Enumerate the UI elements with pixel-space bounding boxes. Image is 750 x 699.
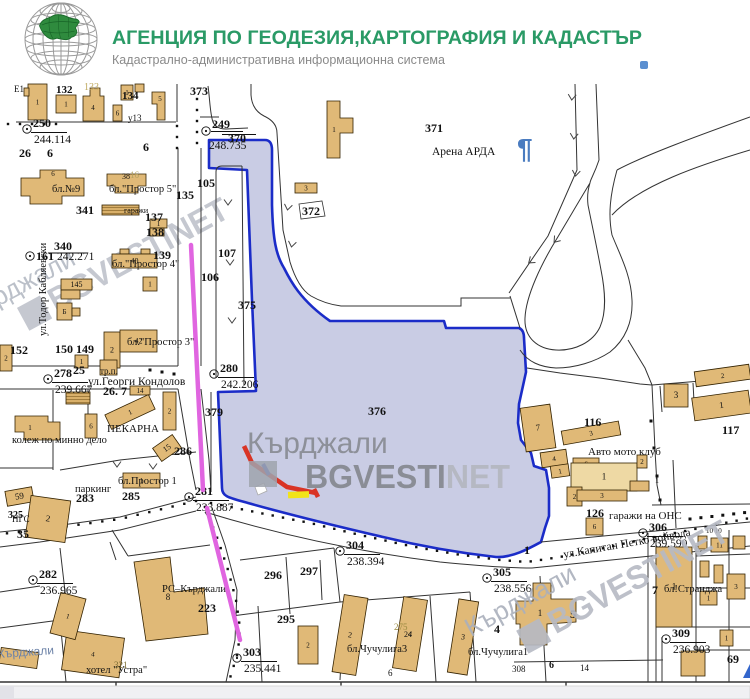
svg-text:304: 304 [346, 538, 364, 552]
svg-text:бл."Простор 5": бл."Простор 5" [109, 184, 176, 195]
svg-text:бл.Чучулига3: бл.Чучулига3 [347, 644, 407, 655]
svg-text:3: 3 [600, 492, 604, 500]
svg-text:6: 6 [143, 140, 149, 154]
svg-text:бл.Чучулига1: бл.Чучулига1 [468, 647, 528, 658]
svg-text:296: 296 [264, 568, 282, 582]
svg-text:106: 106 [201, 270, 219, 284]
svg-text:1: 1 [36, 99, 40, 107]
svg-text:2: 2 [640, 458, 644, 466]
svg-text:133: 133 [84, 82, 99, 93]
svg-text:2: 2 [4, 355, 8, 363]
svg-text:278: 278 [54, 366, 72, 380]
svg-text:233.887: 233.887 [196, 502, 234, 514]
svg-text:6: 6 [116, 110, 120, 118]
svg-text:16: 16 [130, 170, 140, 180]
svg-text:¶: ¶ [517, 133, 533, 164]
svg-text:6: 6 [593, 523, 597, 531]
svg-text:242.271: 242.271 [57, 251, 95, 263]
svg-text:бл.Простор 1: бл.Простор 1 [118, 476, 177, 487]
svg-text:297: 297 [300, 564, 318, 578]
svg-text:ул.Георги Кондолов: ул.Георги Кондолов [88, 376, 186, 388]
svg-text:Арена АРДА: Арена АРДА [432, 146, 496, 158]
svg-text:гаражи на ОНС: гаражи на ОНС [609, 510, 682, 522]
svg-text:24: 24 [404, 630, 412, 639]
svg-text:285: 285 [122, 489, 140, 503]
svg-text:282: 282 [39, 567, 57, 581]
svg-text:ул.Тодор Кабляевски: ул.Тодор Кабляевски [38, 242, 49, 336]
svg-text:238.394: 238.394 [347, 556, 385, 568]
svg-text:14: 14 [137, 387, 145, 395]
svg-text:6: 6 [89, 423, 93, 431]
svg-text:5: 5 [158, 95, 162, 103]
svg-text:3: 3 [674, 390, 679, 400]
svg-text:1: 1 [28, 424, 32, 432]
svg-text:117: 117 [722, 423, 739, 437]
svg-text:309: 309 [672, 626, 690, 640]
svg-text:3: 3 [734, 583, 738, 591]
svg-text:145: 145 [71, 280, 83, 289]
svg-text:4: 4 [91, 104, 95, 112]
svg-text:2: 2 [573, 493, 577, 501]
svg-text:НГС: НГС [12, 514, 30, 524]
svg-text:375: 375 [238, 298, 256, 312]
svg-text:308: 308 [512, 664, 526, 674]
svg-text:135: 135 [176, 188, 194, 202]
svg-text:у13: у13 [128, 113, 142, 123]
svg-text:107: 107 [218, 246, 236, 260]
svg-text:239.667: 239.667 [55, 384, 93, 396]
svg-text:236.903: 236.903 [673, 644, 711, 656]
svg-text:6: 6 [388, 668, 393, 678]
svg-text:132: 132 [56, 84, 73, 96]
svg-text:1: 1 [332, 126, 336, 134]
svg-text:бл."Простор 3": бл."Простор 3" [127, 337, 194, 348]
svg-text:гаражи: гаражи [124, 206, 149, 215]
svg-text:14: 14 [580, 663, 590, 673]
svg-text:1: 1 [655, 476, 659, 485]
svg-text:105: 105 [197, 176, 215, 190]
svg-text:69: 69 [727, 652, 739, 666]
svg-text:6: 6 [47, 146, 53, 160]
svg-text:134: 134 [122, 90, 139, 102]
svg-text:2: 2 [110, 346, 114, 355]
svg-text:149: 149 [76, 342, 94, 356]
svg-text:138: 138 [146, 225, 164, 239]
svg-text:1: 1 [64, 101, 68, 109]
svg-text:250: 250 [33, 116, 51, 130]
svg-text:РС–Кърджали: РС–Кърджали [162, 584, 226, 595]
svg-text:236.965: 236.965 [40, 585, 78, 597]
svg-text:1: 1 [148, 281, 152, 289]
svg-text:38: 38 [122, 172, 130, 181]
svg-text:372: 372 [302, 204, 320, 218]
svg-text:1: 1 [602, 472, 607, 482]
svg-text:бл."Простор 4": бл."Простор 4" [112, 259, 179, 270]
svg-text:303: 303 [243, 645, 261, 659]
svg-text:249: 249 [212, 117, 230, 131]
svg-text:BGVESTINET: BGVESTINET [305, 458, 510, 495]
svg-text:280: 280 [220, 361, 238, 375]
svg-text:223: 223 [198, 601, 216, 615]
svg-text:Б: Б [62, 308, 66, 316]
svg-text:373: 373 [190, 84, 208, 98]
svg-text:3: 3 [304, 185, 308, 193]
svg-text:150: 150 [55, 342, 73, 356]
svg-text:244.114: 244.114 [34, 134, 71, 146]
svg-text:321: 321 [114, 660, 128, 670]
svg-text:376: 376 [368, 404, 386, 418]
svg-text:колеж по минно дело: колеж по минно дело [12, 435, 107, 446]
svg-text:6: 6 [51, 170, 55, 178]
svg-text:ПЕКАРНА: ПЕКАРНА [107, 423, 159, 435]
svg-text:341: 341 [76, 203, 94, 217]
svg-text:6: 6 [549, 660, 554, 671]
svg-text:305: 305 [493, 565, 511, 579]
svg-text:2: 2 [306, 642, 310, 650]
svg-text:116: 116 [584, 415, 601, 429]
svg-text:26: 26 [19, 146, 31, 160]
svg-text:35: 35 [17, 527, 29, 541]
svg-text:248.735: 248.735 [209, 140, 247, 152]
svg-text:379: 379 [205, 405, 223, 419]
svg-text:бл.№9: бл.№9 [52, 184, 80, 195]
svg-text:Кърджали: Кърджали [247, 427, 388, 460]
svg-text:25: 25 [73, 363, 85, 377]
svg-text:бл!Странджа: бл!Странджа [664, 584, 723, 595]
svg-text:1: 1 [707, 595, 711, 603]
svg-text:126: 126 [586, 506, 604, 520]
svg-text:1: 1 [725, 635, 729, 643]
svg-text:152: 152 [10, 343, 28, 357]
svg-text:295: 295 [277, 612, 295, 626]
svg-text:235.441: 235.441 [244, 663, 282, 675]
svg-text:286: 286 [174, 444, 192, 458]
svg-text:Авто мото клуб: Авто мото клуб [588, 446, 661, 458]
svg-text:371: 371 [425, 121, 443, 135]
svg-text:2: 2 [168, 408, 172, 416]
svg-text:Кадастрално-административна ин: Кадастрално-административна информационн… [112, 52, 446, 67]
svg-text:1: 1 [524, 543, 530, 557]
svg-text:АГЕНЦИЯ ПО ГЕОДЕЗИЯ,КАРТОГРАФИ: АГЕНЦИЯ ПО ГЕОДЕЗИЯ,КАРТОГРАФИЯ И КАДАСТ… [112, 28, 642, 49]
svg-text:Е1: Е1 [14, 84, 24, 94]
svg-text:242.206: 242.206 [221, 379, 259, 391]
svg-text:тр.п.: тр.п. [100, 366, 118, 376]
svg-text:паркинг: паркинг [75, 484, 112, 495]
